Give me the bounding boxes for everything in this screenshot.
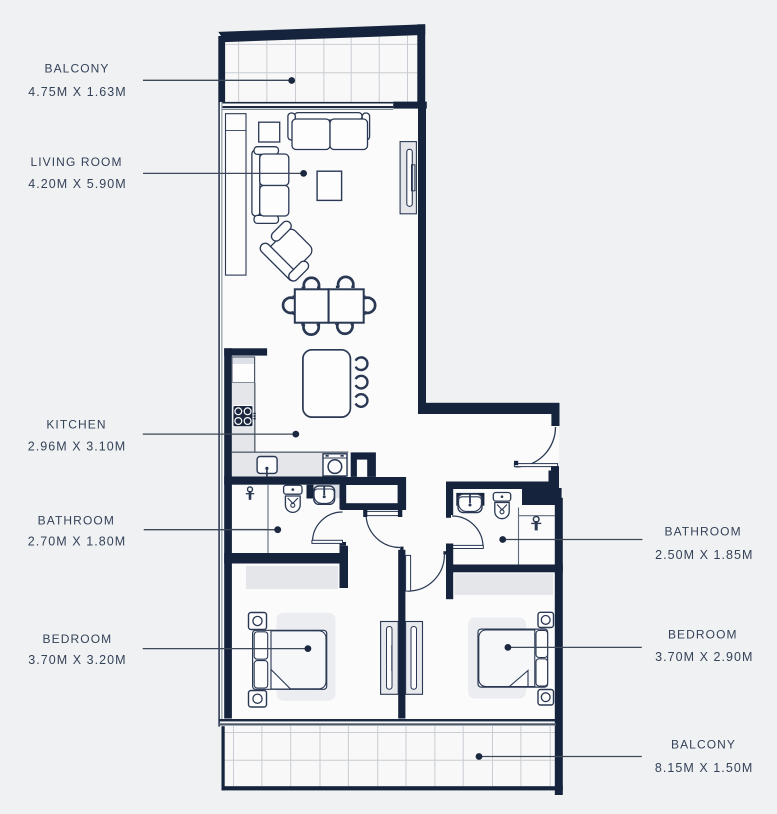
svg-text:3.70M X 3.20M: 3.70M X 3.20M — [28, 653, 126, 667]
svg-text:BATHROOM: BATHROOM — [664, 524, 741, 538]
svg-text:LIVING ROOM: LIVING ROOM — [30, 155, 122, 169]
svg-text:KITCHEN: KITCHEN — [46, 418, 106, 432]
svg-text:2.70M X 1.80M: 2.70M X 1.80M — [28, 535, 126, 549]
svg-text:2.50M X 1.85M: 2.50M X 1.85M — [655, 548, 753, 562]
svg-text:4.20M X 5.90M: 4.20M X 5.90M — [28, 177, 126, 191]
svg-text:4.75M X 1.63M: 4.75M X 1.63M — [28, 85, 126, 99]
svg-text:8.15M X 1.50M: 8.15M X 1.50M — [655, 761, 753, 775]
svg-text:2.96M X 3.10M: 2.96M X 3.10M — [28, 439, 126, 453]
svg-text:BATHROOM: BATHROOM — [38, 514, 115, 528]
svg-text:BEDROOM: BEDROOM — [668, 628, 738, 642]
svg-text:BEDROOM: BEDROOM — [43, 632, 113, 646]
svg-text:3.70M X 2.90M: 3.70M X 2.90M — [655, 650, 753, 664]
svg-text:BALCONY: BALCONY — [44, 62, 109, 76]
svg-text:BALCONY: BALCONY — [671, 737, 736, 751]
